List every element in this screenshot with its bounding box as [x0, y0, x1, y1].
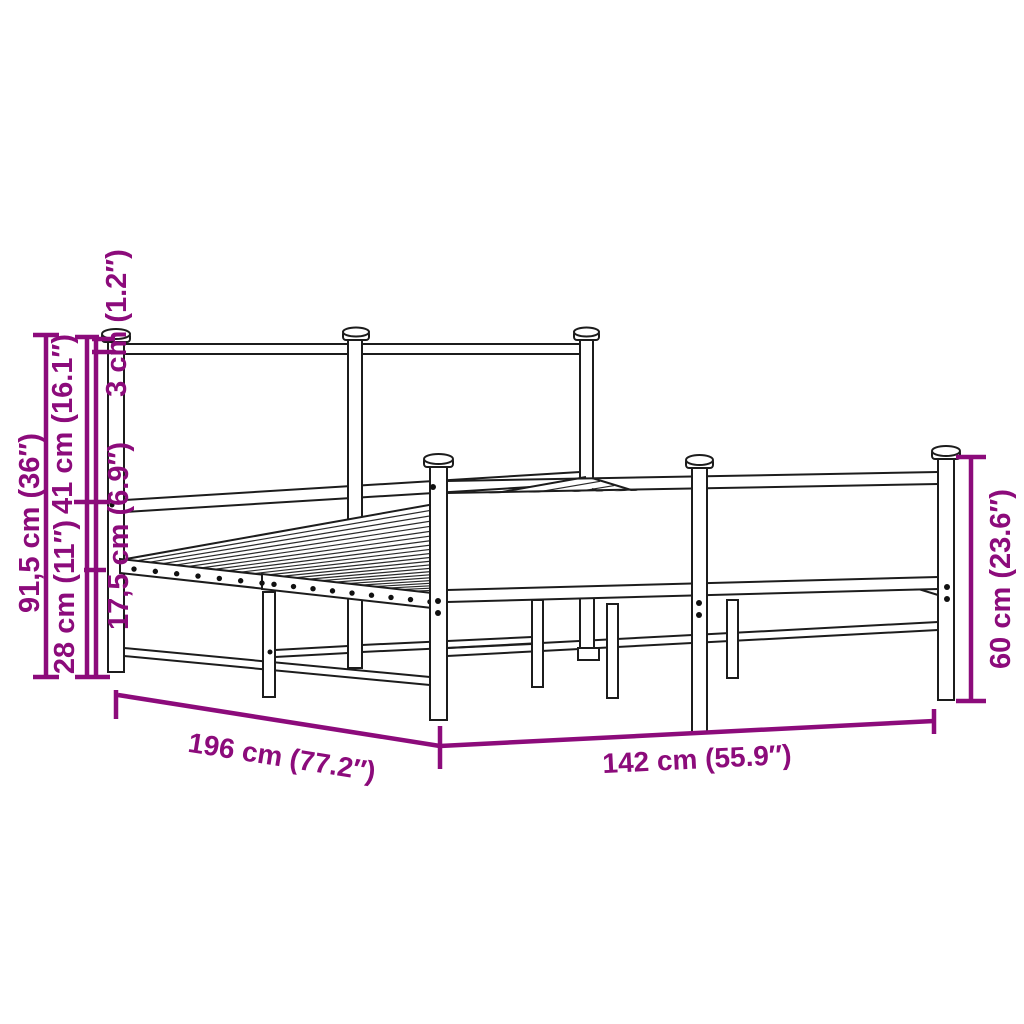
- support-leg: [532, 600, 543, 687]
- post-cap-dome: [686, 455, 713, 465]
- bed-frame-drawing: [102, 328, 960, 734]
- post-cap-dome: [932, 446, 960, 456]
- dim-label-width: 142 cm (55.9″): [602, 739, 793, 779]
- dim-label-headboard-top-rail: 3 cm (1.2″): [101, 249, 133, 397]
- dim-label-length: 196 cm (77.2″): [186, 727, 378, 787]
- dim-label-overall-height: 91,5 cm (36″): [14, 433, 46, 613]
- leg-foot-plate: [578, 648, 599, 660]
- post-cap-dome: [424, 454, 453, 464]
- dim-label-headboard-panel: 41 cm (16.1″): [47, 334, 79, 514]
- post-cap-dome: [574, 328, 599, 337]
- footboard-far-post: [938, 459, 954, 700]
- post-cap-dome: [343, 328, 369, 337]
- footboard-near-post: [430, 467, 447, 720]
- support-leg: [727, 600, 738, 678]
- headboard-far-post: [580, 340, 593, 489]
- headboard-mid-post: [348, 340, 362, 668]
- dim-line-footboard-height: [956, 457, 986, 701]
- support-leg: [263, 592, 275, 697]
- diagram-canvas: 91,5 cm (36″) 41 cm (16.1″) 28 cm (11″) …: [0, 0, 1024, 1024]
- dim-label-frame-depth: 17,5 cm (6.9″): [103, 442, 135, 630]
- support-leg: [607, 604, 618, 698]
- dim-line-width: [440, 709, 934, 746]
- dim-label-ground-clearance: 28 cm (11″): [49, 520, 81, 674]
- bed-frame-diagram: 91,5 cm (36″) 41 cm (16.1″) 28 cm (11″) …: [0, 0, 1024, 1024]
- dim-label-footboard-height: 60 cm (23.6″): [985, 489, 1017, 669]
